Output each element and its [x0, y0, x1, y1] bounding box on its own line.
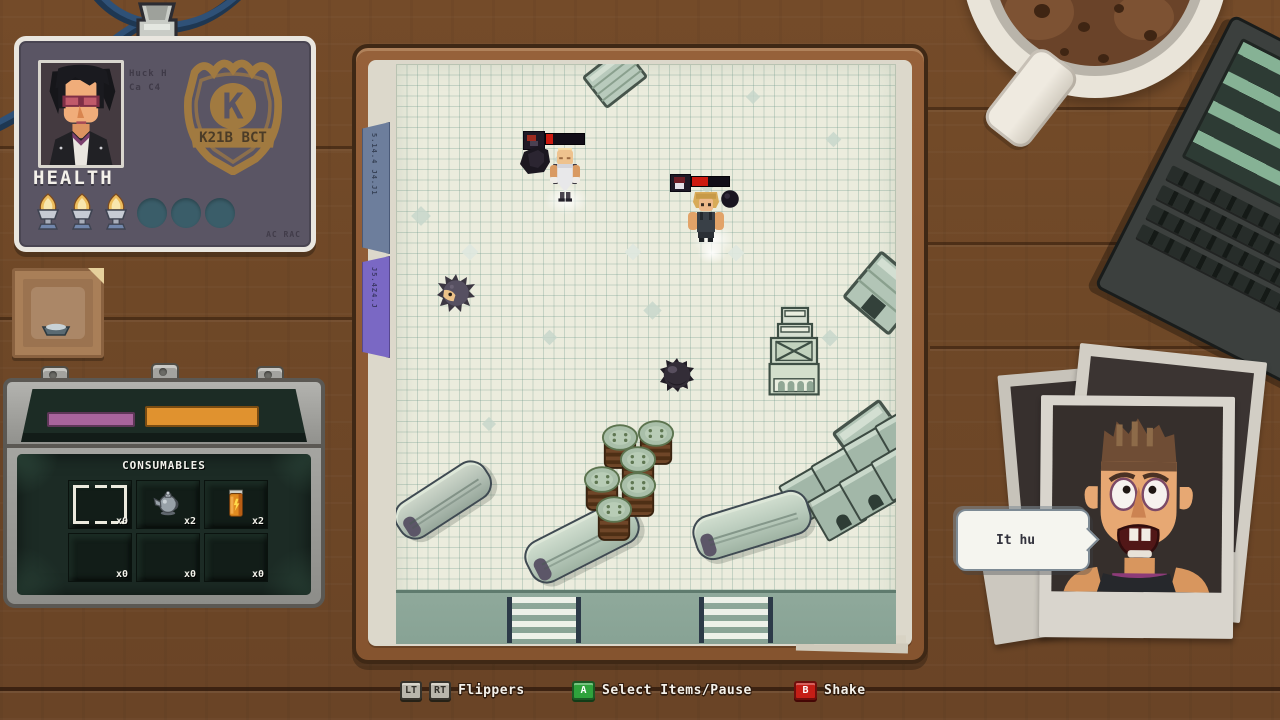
- toolbox-body: CONSUMABLES x0: [3, 444, 325, 608]
- slot-count: x2: [252, 516, 264, 527]
- selection-cursor: [73, 500, 76, 510]
- b-button-icon: B: [794, 681, 817, 700]
- coffee-speckle: [1114, 4, 1124, 13]
- bench-endcap: [401, 514, 423, 539]
- coffee-speckle: [1060, 48, 1069, 56]
- paper-smudge: [746, 90, 760, 104]
- board-viewport[interactable]: [396, 64, 896, 644]
- selection-cursor: [95, 485, 107, 488]
- enemy-shadow: [697, 242, 727, 264]
- coffee-speckle: [1144, 30, 1157, 41]
- consumable-slot-empty[interactable]: x0: [136, 533, 200, 582]
- health-pip-empty: [137, 198, 167, 228]
- consumable-slot-soda-can[interactable]: x2: [204, 480, 268, 529]
- player-portrait-art: [41, 63, 121, 165]
- bookmark-tab-blue[interactable]: 5.14.4 J4.J1: [362, 122, 390, 254]
- slot-count: x0: [116, 569, 128, 580]
- toolbox-lid: [3, 378, 325, 452]
- note-doodle: [39, 317, 73, 337]
- lid-item-orange: [145, 406, 259, 427]
- paper-smudge: [826, 132, 842, 148]
- ladder: [507, 597, 581, 643]
- enemy-brawler: [667, 172, 745, 258]
- bench-endcap: [699, 532, 718, 558]
- hedgehog-creature: [437, 274, 475, 312]
- paper-smudge: [482, 417, 496, 431]
- police-badge-emblem: K K21B BCT: [169, 53, 297, 175]
- health-pip-full-icon: [99, 193, 133, 233]
- desk-note: [12, 268, 104, 358]
- barrel-cluster: [579, 416, 689, 546]
- speech-bubble: It hu: [956, 509, 1090, 571]
- badge-serial-text: AC RAC: [266, 230, 301, 239]
- consumable-slot-selected[interactable]: x0: [68, 480, 132, 529]
- slot-count: x0: [116, 516, 128, 527]
- health-label: HEALTH: [33, 167, 114, 189]
- enemy-health-fill: [546, 134, 553, 144]
- bookmark-tab-purple[interactable]: J5.4Z4.J: [362, 256, 390, 358]
- game-screen: Huck HCa C4 K K21B BCT HEALTH: [0, 0, 1280, 720]
- selection-cursor: [124, 500, 127, 510]
- enemy-butcher: [520, 129, 592, 221]
- control-hint-flippers: LT RT Flippers: [400, 679, 525, 701]
- a-button-icon: A: [572, 681, 595, 700]
- paper-smudge: [411, 206, 431, 226]
- lid-item-purple: [47, 412, 135, 427]
- emblem-letter: K: [222, 86, 244, 127]
- health-pip-full-icon: [31, 193, 65, 233]
- health-pip-full-icon: [65, 193, 99, 233]
- selection-cursor: [73, 508, 89, 524]
- paper-smudge: [625, 244, 642, 261]
- soda-can-icon: [227, 488, 245, 518]
- bench: [396, 454, 499, 547]
- consumables-title: CONSUMABLES: [17, 459, 311, 472]
- rt-button-icon: RT: [429, 681, 451, 700]
- flippers-label: Flippers: [458, 683, 525, 698]
- slot-count: x0: [252, 569, 264, 580]
- coffee-speckle: [1034, 4, 1050, 18]
- health-pip-empty: [171, 198, 201, 228]
- control-hint-shake: B Shake: [794, 679, 866, 701]
- consumables-toolbox: CONSUMABLES x0: [3, 362, 325, 612]
- consumable-slot-teapot[interactable]: x2: [136, 480, 200, 529]
- ladder: [699, 597, 773, 643]
- paper-smudge: [542, 330, 558, 346]
- slot-count: x2: [184, 516, 196, 527]
- coffee-speckle: [1078, 22, 1090, 32]
- pinball: [660, 358, 694, 392]
- emblem-banner-text: K21B BCT: [199, 130, 267, 146]
- crate-tilted: [841, 249, 896, 336]
- crate-tilted: [581, 64, 649, 110]
- coffee-speckle: [1098, 54, 1109, 63]
- slot-count: x0: [184, 569, 196, 580]
- lt-button-icon: LT: [400, 681, 422, 700]
- control-hint-select: A Select Items/Pause: [572, 679, 752, 701]
- consumable-slot-empty[interactable]: x0: [204, 533, 268, 582]
- note-tape-corner: [88, 268, 104, 284]
- shake-label: Shake: [824, 683, 866, 698]
- tab-label: 5.14.4 J4.J1: [370, 133, 378, 196]
- health-pips: [31, 193, 235, 233]
- health-pip-empty: [205, 198, 235, 228]
- select-label: Select Items/Pause: [602, 683, 752, 698]
- selection-cursor: [73, 485, 89, 501]
- board-base-strip: [396, 590, 896, 644]
- speech-bubble-text: It hu: [958, 533, 1035, 548]
- badge-name-text: Huck HCa C4: [129, 67, 168, 95]
- paper-smudge: [822, 330, 839, 347]
- toolbox-interior: CONSUMABLES x0: [17, 454, 311, 595]
- consumable-slot-empty[interactable]: x0: [68, 533, 132, 582]
- selection-cursor: [95, 521, 107, 524]
- enemy-health-bar: [545, 133, 585, 145]
- barrel: [595, 494, 633, 544]
- chip-art: [675, 183, 684, 189]
- enemy-health-bar: [691, 176, 730, 187]
- butcher-sprite: [548, 146, 582, 202]
- paper-smudge: [643, 301, 661, 319]
- enemy-health-fill: [692, 177, 708, 186]
- sketch-cabinet: [768, 306, 820, 396]
- player-portrait: [38, 60, 124, 168]
- game-board: 5.14.4 J4.J1 J5.4Z4.J: [352, 44, 928, 664]
- player-id-badge: Huck HCa C4 K K21B BCT HEALTH: [14, 36, 316, 252]
- selection-cursor: [111, 485, 127, 501]
- consumable-slots: x0 x2: [68, 480, 268, 582]
- teapot-icon: [152, 490, 184, 516]
- paper-smudge: [462, 244, 479, 261]
- bench-endcap: [532, 556, 554, 582]
- brawler-dumbbell: [720, 188, 740, 210]
- tab-label: J5.4Z4.J: [370, 267, 378, 309]
- bench: [688, 485, 816, 564]
